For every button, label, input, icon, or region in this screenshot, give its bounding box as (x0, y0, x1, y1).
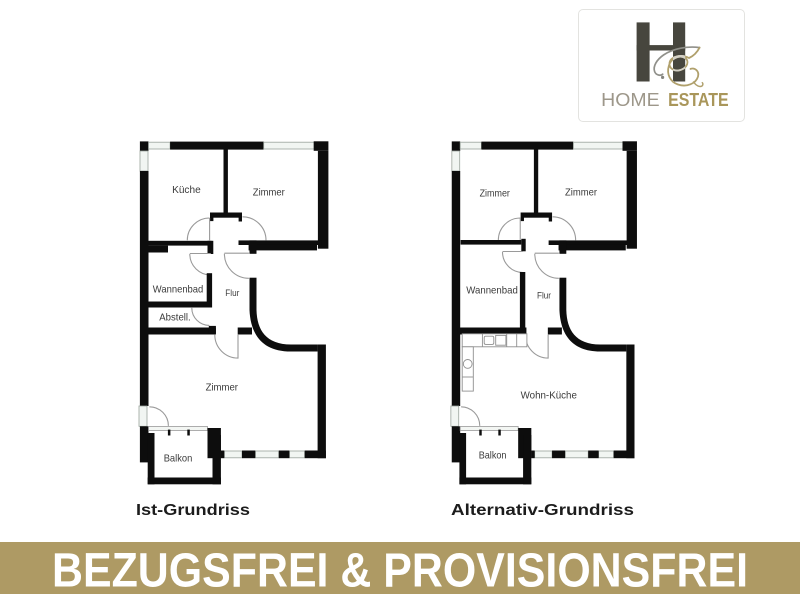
svg-text:Flur: Flur (225, 288, 239, 298)
svg-text:BEZUGSFREI & PROVISIONSFREI: BEZUGSFREI & PROVISIONSFREI (52, 544, 748, 595)
svg-text:Zimmer: Zimmer (206, 382, 239, 394)
svg-text:HOME: HOME (601, 90, 659, 110)
svg-text:Wannenbad: Wannenbad (153, 284, 204, 296)
svg-text:Küche: Küche (172, 184, 201, 196)
svg-text:Balkon: Balkon (479, 450, 507, 462)
svg-text:Alternativ-Grundriss: Alternativ-Grundriss (451, 502, 634, 519)
svg-text:Wohn-Küche: Wohn-Küche (521, 390, 577, 402)
svg-text:Flur: Flur (537, 291, 551, 301)
svg-text:Zimmer: Zimmer (253, 186, 285, 198)
svg-text:Zimmer: Zimmer (565, 186, 597, 198)
svg-text:Wannenbad: Wannenbad (466, 285, 518, 297)
svg-text:Zimmer: Zimmer (480, 188, 511, 200)
svg-text:ESTATE: ESTATE (668, 90, 729, 110)
svg-text:Balkon: Balkon (164, 452, 193, 464)
svg-text:Ist-Grundriss: Ist-Grundriss (136, 502, 250, 519)
svg-text:Abstell.: Abstell. (159, 311, 190, 323)
